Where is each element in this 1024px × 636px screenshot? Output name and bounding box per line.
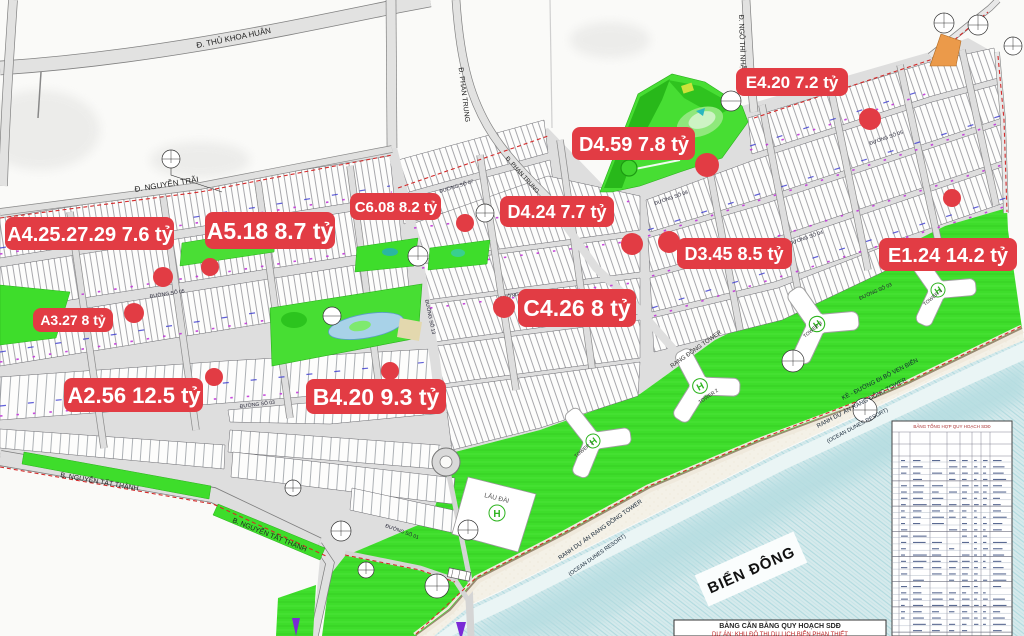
svg-text:C4.26 8 tỷ: C4.26 8 tỷ xyxy=(523,295,631,321)
svg-text:D3.45 8.5 tỷ: D3.45 8.5 tỷ xyxy=(684,244,783,264)
svg-text:BẢNG TỔNG HỢP QUY HOẠCH SDĐ: BẢNG TỔNG HỢP QUY HOẠCH SDĐ xyxy=(913,423,991,429)
svg-text:A2.56 12.5 tỷ: A2.56 12.5 tỷ xyxy=(67,383,201,408)
svg-text:D4.24 7.7 tỷ: D4.24 7.7 tỷ xyxy=(507,202,606,222)
svg-text:H: H xyxy=(493,509,500,520)
svg-text:E4.20 7.2 tỷ: E4.20 7.2 tỷ xyxy=(746,73,839,92)
svg-text:D4.59 7.8 tỷ: D4.59 7.8 tỷ xyxy=(579,134,690,156)
svg-text:B4.20 9.3 tỷ: B4.20 9.3 tỷ xyxy=(313,384,440,410)
svg-text:C6.08 8.2 tỷ: C6.08 8.2 tỷ xyxy=(355,199,438,216)
svg-text:DỰ ÁN: KHU ĐÔ THỊ DU LỊCH BIỂN: DỰ ÁN: KHU ĐÔ THỊ DU LỊCH BIỂN PHAN THIẾ… xyxy=(712,631,848,636)
svg-text:BẢNG CĂN BẰNG QUY HOẠCH SDĐ: BẢNG CĂN BẰNG QUY HOẠCH SDĐ xyxy=(719,621,841,630)
svg-text:A5.18 8.7 tỷ: A5.18 8.7 tỷ xyxy=(207,218,334,244)
svg-text:A4.25.27.29 7.6 tỷ: A4.25.27.29 7.6 tỷ xyxy=(7,224,174,246)
svg-text:A3.27 8 tỷ: A3.27 8 tỷ xyxy=(40,312,106,328)
svg-text:E1.24 14.2 tỷ: E1.24 14.2 tỷ xyxy=(888,245,1009,267)
